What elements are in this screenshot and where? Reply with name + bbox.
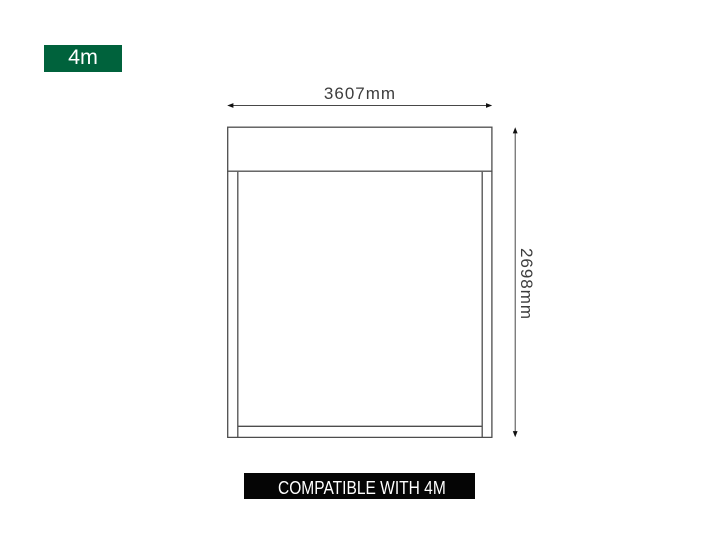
svg-text:3607mm: 3607mm [324,84,396,103]
svg-text:2698mm: 2698mm [517,248,536,320]
